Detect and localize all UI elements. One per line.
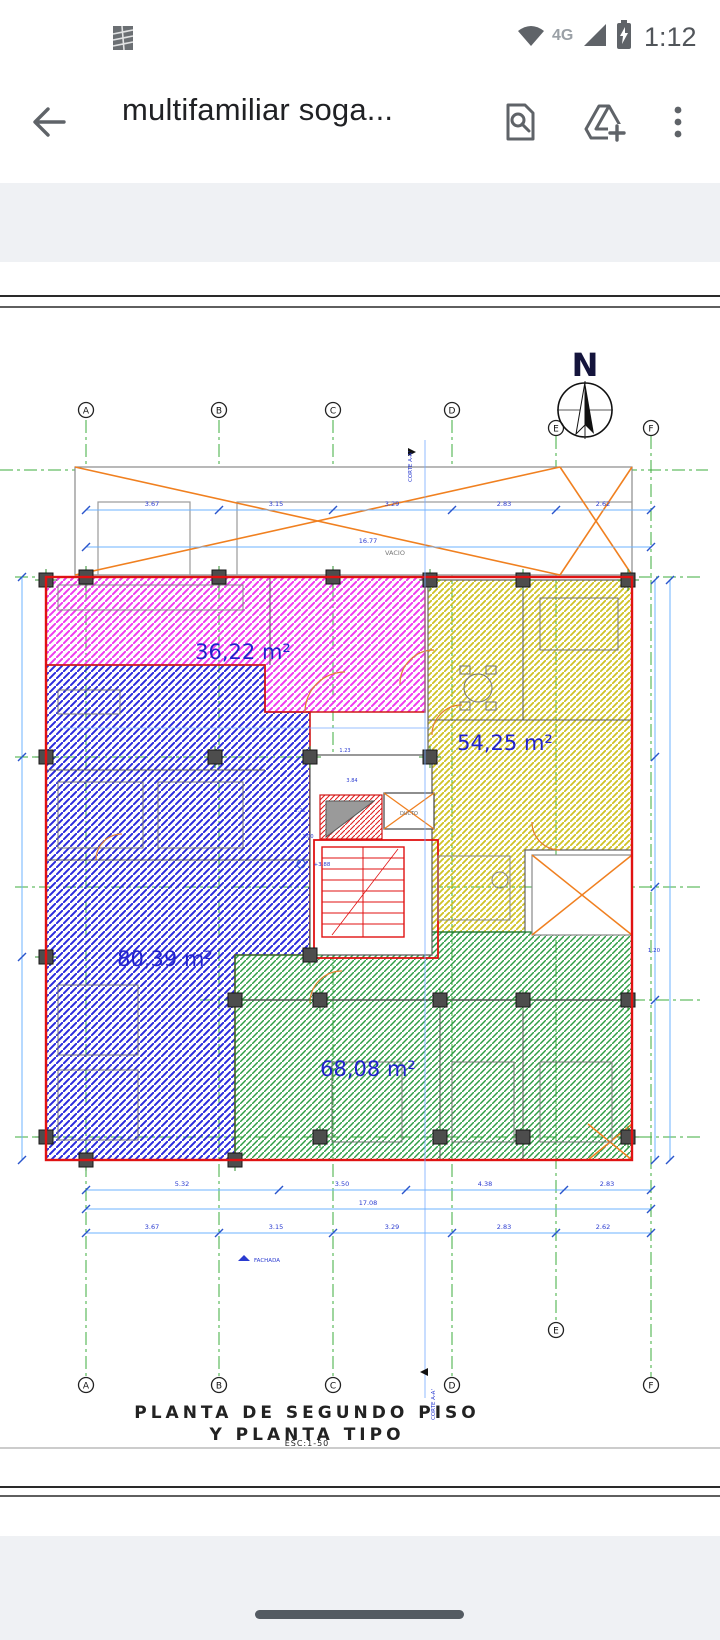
duct-label: DUCTO: [400, 811, 418, 817]
battery-charging-icon: [616, 20, 632, 50]
network-type-label: 4G: [552, 27, 573, 45]
svg-text:4.38: 4.38: [478, 1180, 492, 1188]
svg-text:B: B: [216, 1382, 222, 1392]
area-label-green: 68,08 m²: [320, 1057, 416, 1081]
signal-icon: [582, 22, 608, 48]
svg-text:1.00: 1.00: [302, 834, 313, 840]
void-label: VACIO: [385, 549, 405, 557]
svg-text:2.83: 2.83: [497, 1223, 511, 1231]
svg-text:F: F: [648, 1382, 653, 1392]
svg-text:D: D: [449, 1382, 456, 1392]
facade-marker: FACHADA: [238, 1255, 280, 1264]
svg-text:1.21: 1.21: [294, 808, 305, 814]
svg-text:2.62: 2.62: [596, 500, 610, 508]
clock: 1:12: [644, 22, 697, 53]
svg-text:1.20: 1.20: [648, 948, 661, 954]
section-label-top: CORTE A-A': [408, 451, 414, 482]
void-band: VACIO: [75, 467, 632, 575]
find-in-page-icon[interactable]: [498, 100, 542, 144]
back-arrow-icon[interactable]: [26, 100, 70, 144]
area-label-blue: 80,39 m²: [117, 947, 213, 971]
home-indicator[interactable]: [255, 1610, 464, 1619]
svg-text:E: E: [553, 425, 559, 435]
title-line-1: PLANTA DE SEGUNDO PISO: [134, 1403, 479, 1423]
svg-text:5.32: 5.32: [175, 1180, 189, 1188]
app-bar: multifamiliar soga...: [0, 60, 720, 184]
svg-text:2.83: 2.83: [600, 1180, 614, 1188]
notification-thumbnail-icon: [110, 24, 138, 52]
svg-text:C: C: [330, 1382, 336, 1392]
scale-label: ESC:1-50: [285, 1439, 330, 1448]
svg-text:FACHADA: FACHADA: [254, 1258, 280, 1264]
document-title: multifamiliar soga...: [122, 92, 393, 128]
svg-text:A: A: [83, 1382, 90, 1392]
svg-text:2.83: 2.83: [497, 500, 511, 508]
svg-text:E: E: [553, 1327, 559, 1337]
svg-text:+3.88: +3.88: [314, 862, 331, 868]
drive-add-icon[interactable]: [582, 100, 626, 144]
svg-text:3.67: 3.67: [145, 1223, 159, 1231]
overflow-menu-icon[interactable]: [656, 100, 700, 144]
svg-text:D: D: [449, 407, 456, 417]
svg-text:16.77: 16.77: [359, 537, 378, 545]
svg-text:3.29: 3.29: [385, 1223, 399, 1231]
north-compass-icon: N: [557, 346, 613, 439]
svg-text:1.23: 1.23: [339, 748, 350, 754]
svg-text:B: B: [216, 407, 222, 417]
svg-text:3.29: 3.29: [385, 500, 399, 508]
svg-text:17.08: 17.08: [359, 1199, 378, 1207]
wifi-icon: [516, 24, 546, 48]
svg-text:2.62: 2.62: [596, 1223, 610, 1231]
svg-text:3.84: 3.84: [346, 778, 357, 784]
svg-text:3.67: 3.67: [145, 500, 159, 508]
svg-text:3.50: 3.50: [335, 1180, 349, 1188]
floor-plan-drawing: VACIO DUCTO: [0, 262, 720, 1536]
status-bar: 4G 1:12: [0, 0, 720, 60]
svg-text:F: F: [648, 425, 653, 435]
area-label-yellow: 54,25 m²: [457, 731, 553, 755]
stair-core: DUCTO: [310, 755, 438, 958]
north-label: N: [572, 346, 599, 384]
svg-text:3.15: 3.15: [269, 500, 283, 508]
svg-text:3.15: 3.15: [269, 1223, 283, 1231]
sheet-title: PLANTA DE SEGUNDO PISO Y PLANTA TIPO ESC…: [134, 1403, 479, 1448]
apartment-green: [235, 932, 632, 1160]
area-label-magenta: 36,22 m²: [195, 640, 291, 664]
svg-text:C: C: [330, 407, 336, 417]
svg-text:A: A: [83, 407, 90, 417]
